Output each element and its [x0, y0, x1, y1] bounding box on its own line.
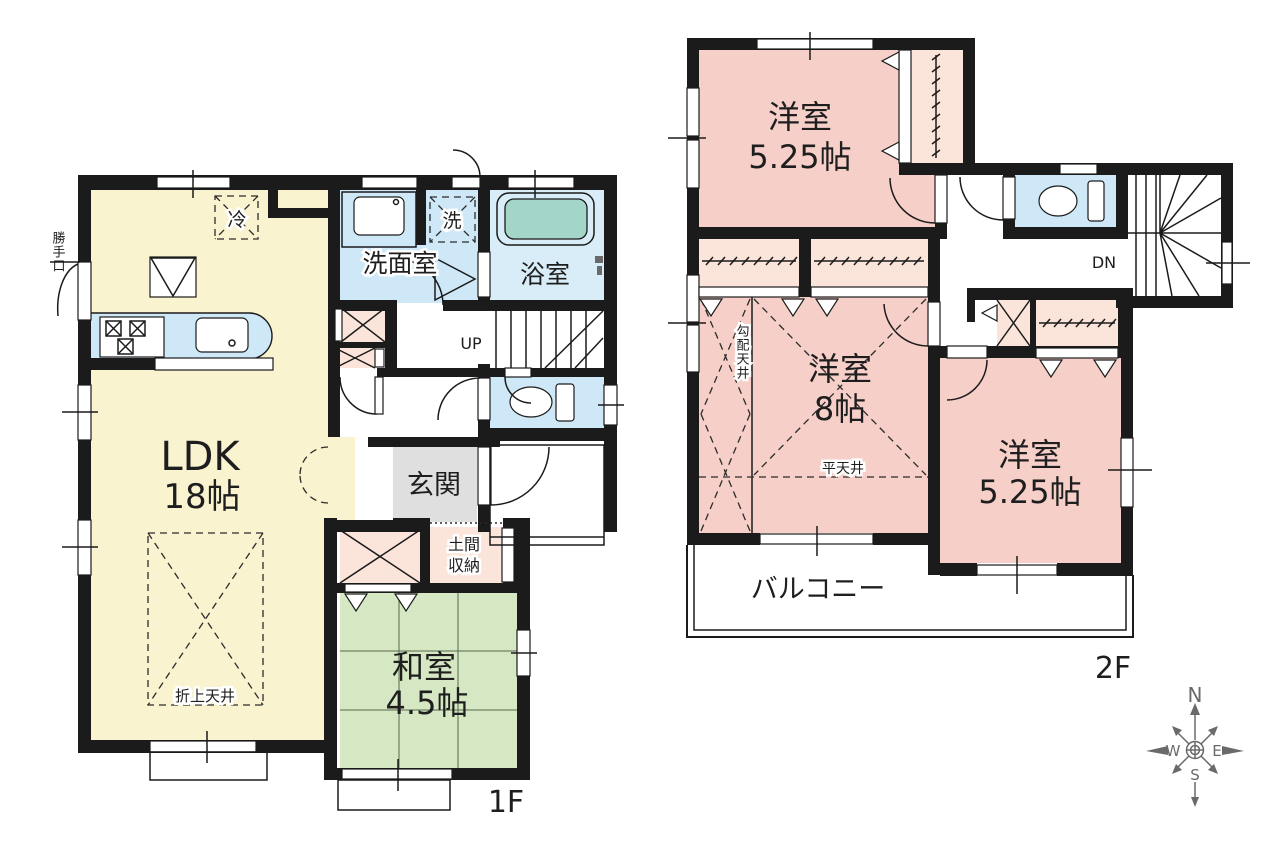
- compass-east-label: E: [1212, 742, 1221, 760]
- floor1-label: 1F: [488, 785, 524, 820]
- floorplan-image: 冷 折上天井 洗: [0, 0, 1280, 853]
- floor2-label: 2F: [1095, 651, 1131, 686]
- washer-label: 洗: [442, 210, 461, 232]
- entrance-label: 玄関: [407, 470, 461, 501]
- kitchen-sink-icon: [196, 318, 248, 352]
- bedroom1-size: 5.25帖: [748, 138, 851, 176]
- compass-north-label: N: [1188, 683, 1203, 707]
- bedroom3-size: 5.25帖: [978, 473, 1081, 511]
- compass-rose: N W E S: [1146, 683, 1244, 807]
- compass-south-label: S: [1190, 766, 1200, 784]
- sloped-ceiling-label: 勾配天井: [734, 324, 750, 380]
- ldk-label: LDK: [160, 434, 241, 480]
- stairs-2f: [1116, 175, 1221, 296]
- terrace-step-washitsu: [338, 780, 450, 810]
- bedroom3-label: 洋室: [998, 436, 1062, 474]
- floorplan-page: 冷 折上天井 洗: [0, 0, 1280, 853]
- doma-label-1: 土間: [448, 535, 480, 554]
- stove-icon: [100, 317, 164, 357]
- floor1-plan: 冷 折上天井 洗: [50, 150, 625, 820]
- stairs-1f: [496, 311, 603, 368]
- compass-west-label: W: [1166, 742, 1181, 760]
- refrigerator-label: 冷: [227, 209, 246, 231]
- washroom-label: 洗面室: [362, 249, 437, 278]
- bedroom2-label: 洋室: [808, 350, 872, 388]
- bathroom-label: 浴室: [520, 260, 570, 289]
- floor2-plan: 洋室 5.25帖 洋室 8帖 洋室 5.25帖 バルコニー DN 勾配天井 平天…: [668, 32, 1250, 686]
- washitsu-size: 4.5帖: [386, 684, 469, 722]
- flat-ceiling-label: 平天井: [822, 461, 864, 477]
- washitsu-label: 和室: [392, 648, 456, 686]
- doma-label-2: 収納: [448, 556, 480, 575]
- kitchen-counter: [90, 313, 273, 370]
- backdoor-label: 勝手口: [50, 231, 66, 273]
- cupboard-icon: [150, 257, 196, 297]
- ldk-size: 18帖: [163, 477, 240, 517]
- balcony-label: バルコニー: [751, 574, 885, 605]
- bedroom1-label: 洋室: [768, 98, 832, 136]
- stairs-up-label: UP: [460, 334, 482, 353]
- stairs-down-label: DN: [1092, 253, 1116, 272]
- folded-ceiling-label: 折上天井: [175, 687, 235, 705]
- terrace-step-ldk: [150, 752, 267, 780]
- bedroom2-size: 8帖: [814, 390, 866, 428]
